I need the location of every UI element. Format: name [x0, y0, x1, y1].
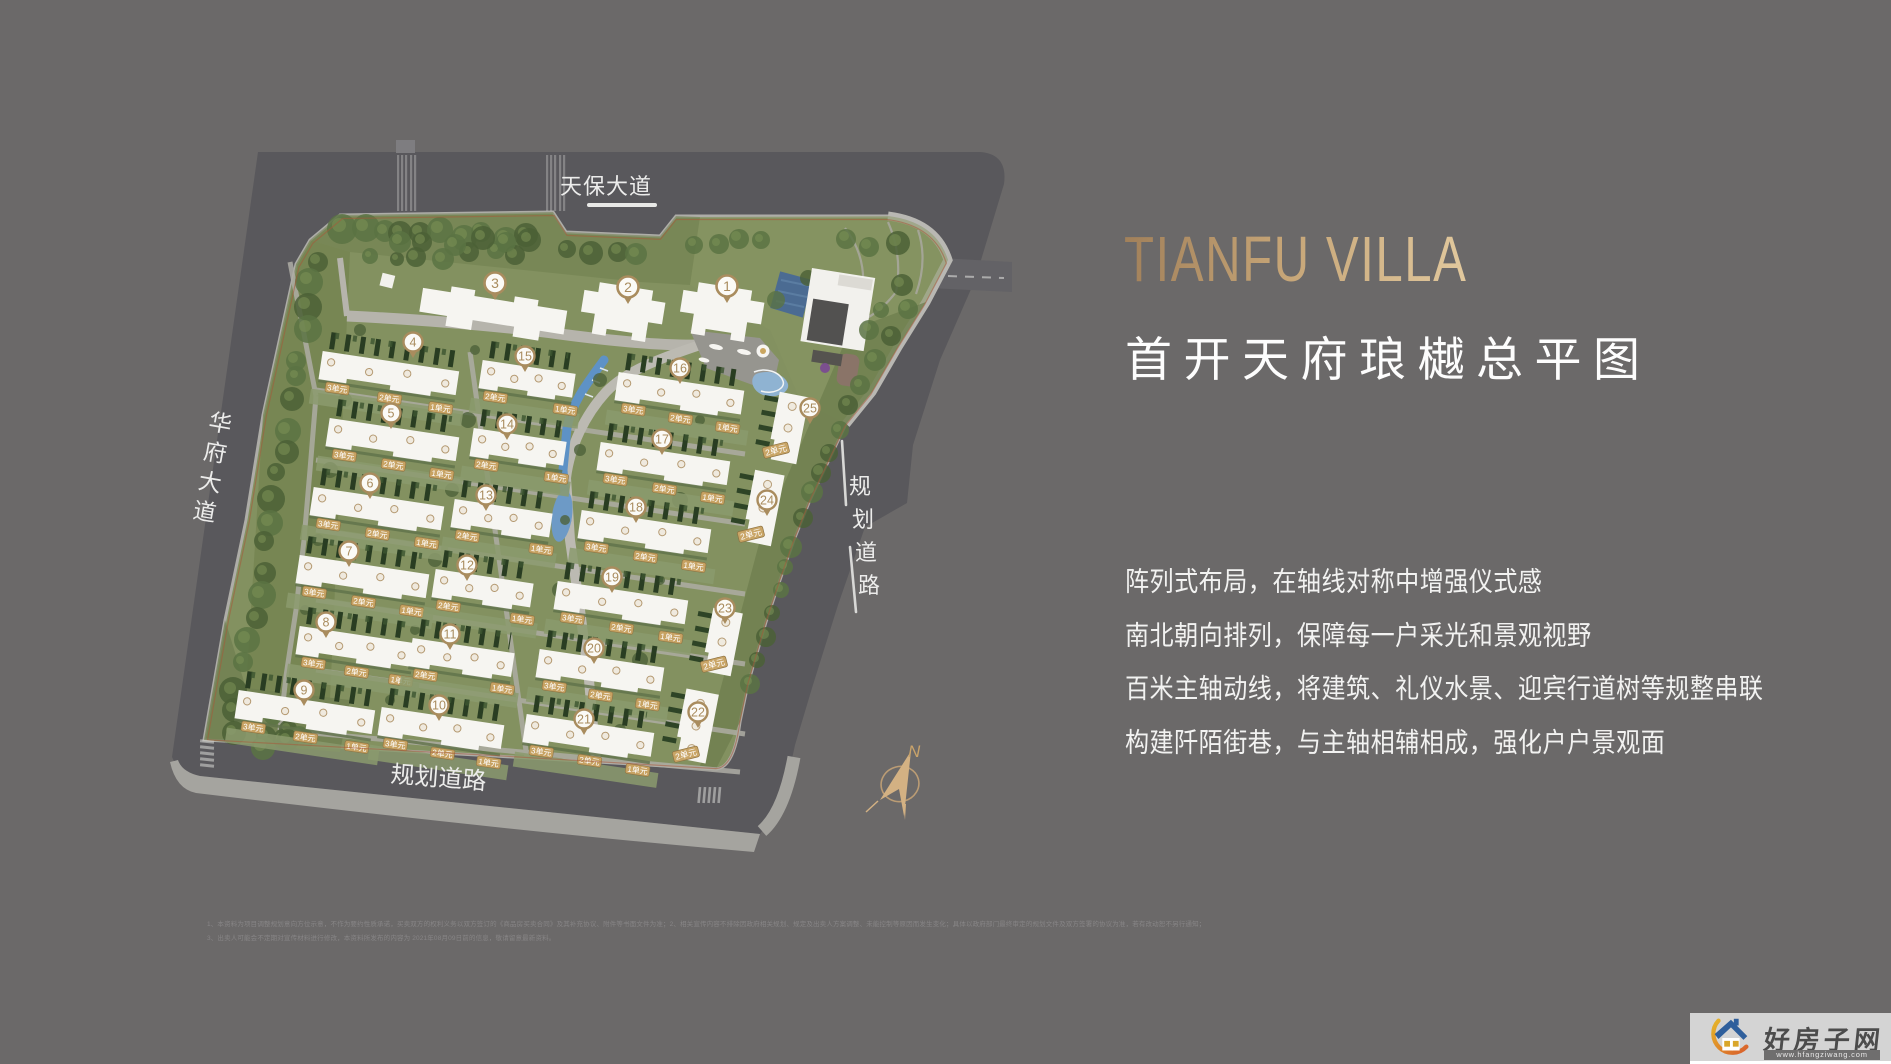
svg-text:天保大道: 天保大道 — [560, 174, 652, 199]
svg-text:3: 3 — [491, 275, 499, 291]
svg-text:7: 7 — [346, 545, 353, 559]
svg-text:15: 15 — [518, 350, 532, 364]
svg-text:18: 18 — [629, 501, 643, 515]
svg-text:17: 17 — [655, 433, 669, 447]
svg-text:4: 4 — [410, 336, 417, 350]
svg-text:N: N — [908, 742, 921, 761]
svg-text:9: 9 — [301, 684, 308, 698]
svg-text:8: 8 — [323, 616, 330, 630]
svg-text:23: 23 — [718, 602, 732, 616]
svg-text:14: 14 — [500, 418, 514, 432]
svg-text:13: 13 — [479, 489, 493, 503]
svg-text:20: 20 — [587, 642, 601, 656]
svg-text:1: 1 — [723, 278, 731, 294]
svg-text:11: 11 — [444, 628, 457, 642]
svg-text:12: 12 — [460, 559, 474, 573]
svg-text:19: 19 — [605, 571, 619, 585]
svg-text:10: 10 — [432, 699, 446, 713]
svg-text:21: 21 — [577, 713, 591, 727]
svg-text:22: 22 — [691, 706, 705, 720]
svg-text:16: 16 — [673, 362, 687, 376]
svg-text:5: 5 — [388, 407, 395, 421]
svg-text:24: 24 — [760, 494, 774, 508]
svg-text:25: 25 — [803, 402, 817, 416]
svg-text:2: 2 — [624, 279, 632, 295]
svg-text:6: 6 — [367, 477, 374, 491]
